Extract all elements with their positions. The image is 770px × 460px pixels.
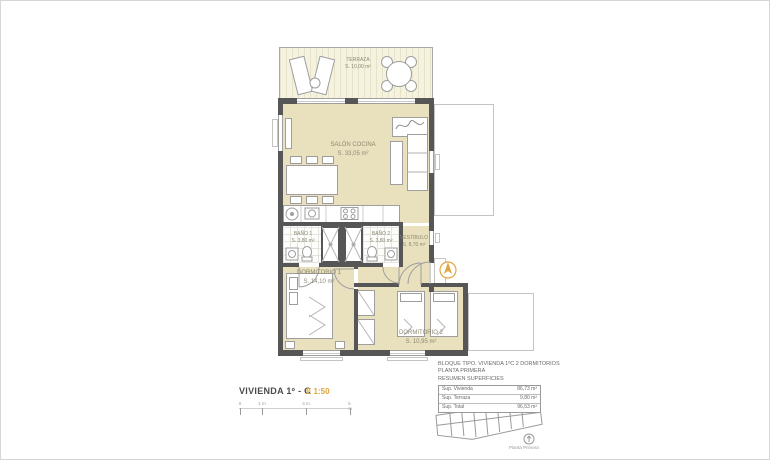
label-vestibulo: VESTÍBULOS. 8,70 m² <box>399 235 429 250</box>
label-bano1: BAÑO 1S. 3,80 m² <box>284 231 322 246</box>
terrace-side-table <box>310 78 320 88</box>
keyplan-caption: Planta Primera <box>509 445 539 450</box>
kitchen-appliances <box>286 206 383 222</box>
scale-text: E 1:50 <box>306 387 330 396</box>
table-cell-value: 86,73 m² <box>517 387 537 393</box>
label-salon: SALÓN COCINAS. 33,05 m² <box>318 141 388 158</box>
shower-cross <box>322 227 362 262</box>
scale-tick <box>306 408 307 415</box>
scale-tick-label: 1 m <box>258 401 266 406</box>
label-dormitorio2: DORMITORIO 2S. 10,95 m² <box>386 329 456 346</box>
floorplan-sheet: TERRAZAS. 10,00 m² SALÓN COCINAS. 33,05 … <box>0 0 770 460</box>
table-cell-label: Sup. Vivienda <box>442 387 473 393</box>
label-terraza: TERRAZAS. 10,00 m² <box>333 57 383 72</box>
scale-tick <box>240 408 241 415</box>
scale-bar: 0 1 m 3 m 5 m <box>239 401 353 417</box>
table-row: Sup. Total 96,53 m² <box>439 404 540 412</box>
table-cell-label: Sup. Total <box>442 405 464 411</box>
table-row: Sup. Vivienda 86,73 m² <box>439 386 540 395</box>
table-cell-value: 96,53 m² <box>517 405 537 411</box>
toilet-icon <box>303 247 312 258</box>
block-info-line2: PLANTA PRIMERA <box>438 368 618 375</box>
scale-tick-label: 3 m <box>302 401 310 406</box>
keyplan-compass-icon <box>524 434 534 444</box>
block-info-line1: BLOQUE TIPO. VIVIENDA 1ºC 2 DORMITORIOS <box>438 361 618 368</box>
table-row: Sup. Terraza 9,80 m² <box>439 395 540 404</box>
table-cell-label: Sup. Terraza <box>442 396 470 402</box>
table-cell-value: 9,80 m² <box>520 396 537 402</box>
scale-tick-label: 0 <box>239 401 242 406</box>
label-dormitorio1: DORMITORIO 1S. 14,10 m² <box>284 269 354 286</box>
plant-icon <box>396 120 424 129</box>
sofa-cushions <box>396 120 428 172</box>
sheet-title: VIVIENDA 1º - C <box>239 386 311 396</box>
block-info: BLOQUE TIPO. VIVIENDA 1ºC 2 DORMITORIOS … <box>438 361 618 383</box>
scale-tick <box>350 408 351 415</box>
surface-table: Sup. Vivienda 86,73 m² Sup. Terraza 9,80… <box>438 385 541 413</box>
block-info-line3: RESUMEN SUPERFICIES <box>438 376 618 383</box>
door-bath2 <box>383 267 399 283</box>
north-compass-icon <box>440 262 456 278</box>
label-bano2: BAÑO 2S. 3,80 m² <box>363 231 399 246</box>
scale-bar-line <box>239 408 351 409</box>
scale-tick <box>262 408 263 415</box>
bathroom-fixtures <box>286 247 397 262</box>
toilet-icon <box>368 247 377 258</box>
